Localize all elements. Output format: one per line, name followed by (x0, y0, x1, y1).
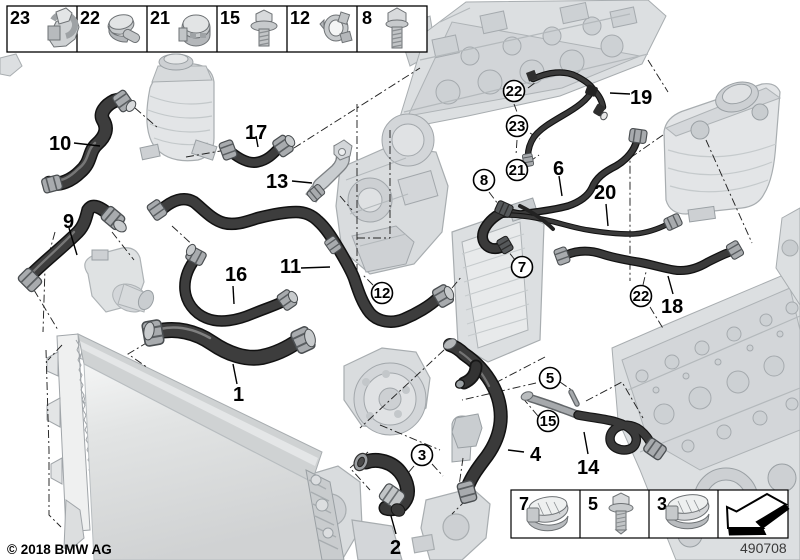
svg-text:9: 9 (63, 211, 74, 233)
svg-text:23: 23 (509, 118, 526, 135)
svg-text:490708: 490708 (740, 540, 787, 556)
svg-text:6: 6 (553, 158, 564, 180)
svg-text:14: 14 (577, 457, 600, 479)
svg-text:5: 5 (546, 370, 554, 387)
svg-text:8: 8 (480, 172, 488, 189)
svg-text:© 2018 BMW AG: © 2018 BMW AG (7, 542, 112, 557)
svg-text:1: 1 (233, 384, 244, 406)
svg-text:8: 8 (362, 8, 372, 28)
svg-text:18: 18 (661, 296, 683, 318)
svg-text:23: 23 (10, 8, 30, 28)
svg-text:10: 10 (49, 133, 71, 155)
svg-text:21: 21 (150, 8, 170, 28)
svg-text:13: 13 (266, 171, 288, 193)
svg-text:2: 2 (390, 537, 401, 559)
svg-text:19: 19 (630, 87, 652, 109)
svg-text:15: 15 (540, 413, 557, 430)
svg-text:15: 15 (220, 8, 240, 28)
svg-text:16: 16 (225, 264, 247, 286)
svg-text:11: 11 (280, 256, 301, 278)
svg-text:22: 22 (80, 8, 100, 28)
svg-text:20: 20 (594, 182, 616, 204)
svg-text:22: 22 (633, 288, 650, 305)
svg-text:3: 3 (418, 447, 426, 464)
svg-text:12: 12 (374, 285, 391, 302)
svg-text:21: 21 (509, 162, 526, 179)
svg-text:4: 4 (530, 444, 542, 466)
svg-text:7: 7 (518, 259, 526, 276)
svg-text:22: 22 (506, 83, 523, 100)
svg-text:12: 12 (290, 8, 310, 28)
svg-text:5: 5 (588, 494, 598, 514)
svg-text:17: 17 (245, 122, 267, 144)
